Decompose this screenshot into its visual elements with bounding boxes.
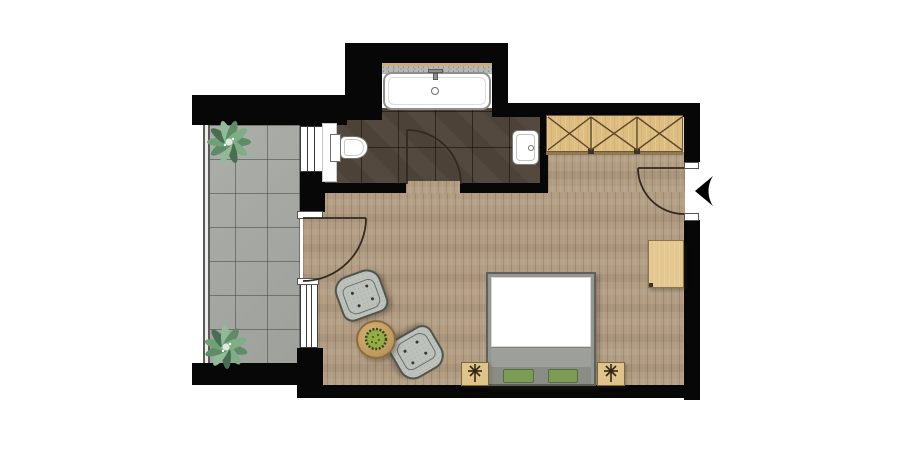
wall-right-lower <box>684 220 700 400</box>
bathroom-window <box>300 126 323 172</box>
wall-top-left <box>192 95 347 125</box>
wall-balcony-bottom <box>192 363 300 385</box>
double-bed <box>486 272 596 386</box>
wall-desk <box>648 240 684 288</box>
entry-arrow-icon <box>695 176 713 206</box>
floor-plan <box>0 0 900 450</box>
armchair-upper-cushion <box>341 277 383 317</box>
round-side-table <box>356 320 396 359</box>
wall-tub-top <box>345 43 508 63</box>
bathroom-doorway-floor <box>406 181 460 193</box>
tub-faucet-stem <box>433 73 438 80</box>
bed-pillow-right <box>548 369 578 383</box>
wardrobe <box>546 115 683 152</box>
desk-handle <box>649 283 653 287</box>
bed-pillow-left <box>503 369 534 383</box>
wall-step-block <box>297 348 323 386</box>
wardrobe-handle-left <box>588 149 594 154</box>
bed-mattress <box>491 277 591 347</box>
bed-blanket-band <box>491 347 591 367</box>
balcony-floor <box>204 125 300 363</box>
tub-drain-icon <box>431 87 439 95</box>
wall-right-upper <box>684 117 700 162</box>
wardrobe-handle-right <box>634 149 640 154</box>
wall-bottom <box>297 385 700 398</box>
balcony-door-sill-top <box>297 211 323 219</box>
balcony-door-sill-bottom <box>297 278 319 285</box>
entry-door-sill-top <box>684 162 699 169</box>
nightstand-right <box>597 362 625 386</box>
balcony-railing <box>203 125 210 363</box>
entry-door-sill-bottom <box>684 213 699 221</box>
main-room-floor-upper <box>548 152 685 192</box>
room-window <box>300 284 318 348</box>
nightstand-left <box>461 362 489 386</box>
armchair-lower-cushion <box>394 330 438 373</box>
wall-bathroom-south-left <box>322 183 406 193</box>
washbasin <box>512 130 539 165</box>
wall-bathroom-south-right <box>460 183 548 193</box>
toilet <box>340 136 368 159</box>
wardrobe-front-rail <box>546 152 683 155</box>
washbasin-faucet-icon <box>528 145 534 151</box>
